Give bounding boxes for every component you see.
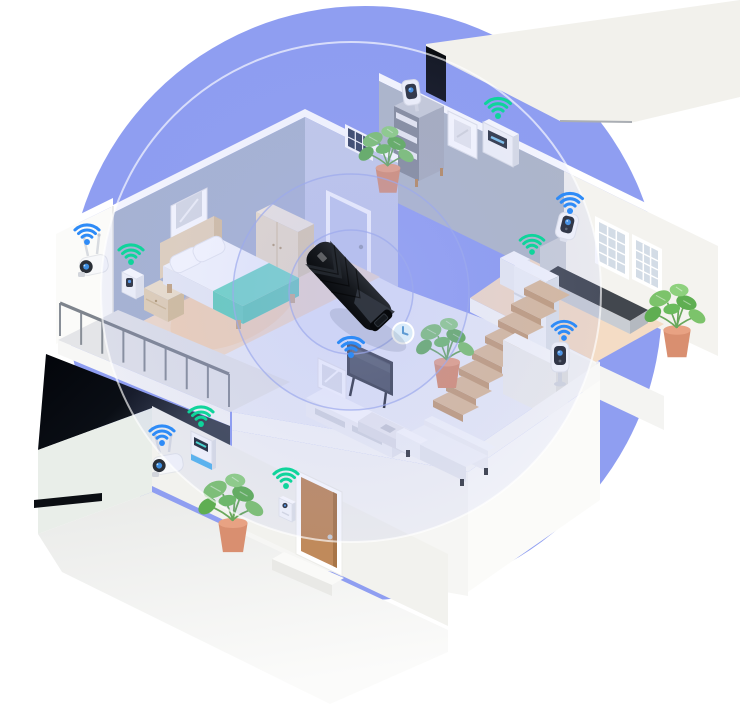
clock-hour-hand	[403, 333, 408, 335]
smart-home-illustration	[0, 0, 740, 720]
scene-canvas	[0, 0, 740, 720]
